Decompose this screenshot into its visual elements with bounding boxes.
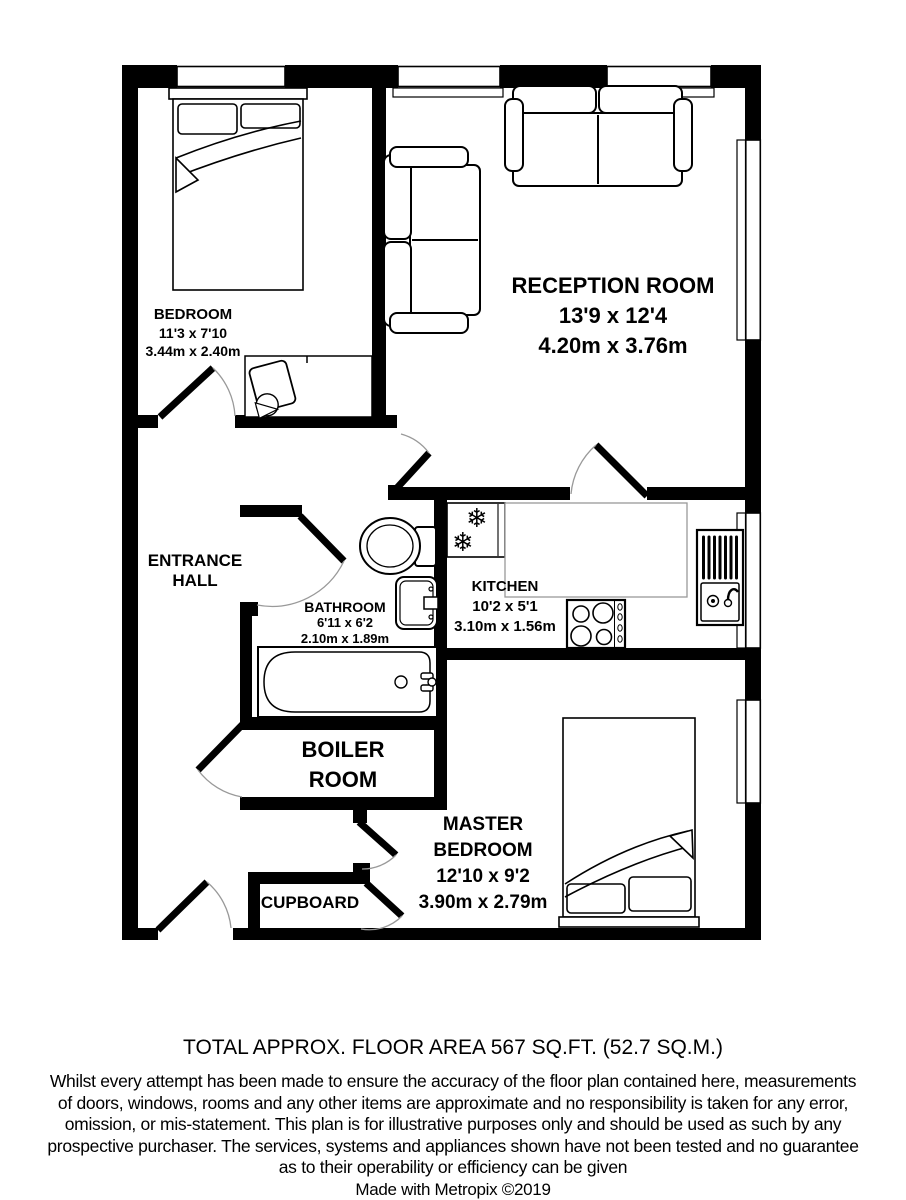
door-master-bedroom xyxy=(359,822,396,855)
reception-dims-ft: 13'9 x 12'4 xyxy=(512,301,715,331)
total-floor-area: TOTAL APPROX. FLOOR AREA 567 SQ.FT. (52.… xyxy=(0,1036,906,1060)
boiler-room-line1: BOILER xyxy=(301,735,384,765)
bedroom-dims-m: 3.44m x 2.40m xyxy=(146,342,241,360)
footer: TOTAL APPROX. FLOOR AREA 567 SQ.FT. (52.… xyxy=(0,1028,906,1200)
entrance-hall-line1: ENTRANCE xyxy=(148,551,242,571)
disclaimer-line: of doors, windows, rooms and any other i… xyxy=(0,1093,906,1115)
disclaimer-line: omission, or mis-statement. This plan is… xyxy=(0,1114,906,1136)
bathroom-dims-m: 2.10m x 1.89m xyxy=(301,631,389,647)
room-label-boiler-room: BOILER ROOM xyxy=(301,735,384,795)
room-label-bathroom: BATHROOM 6'11 x 6'2 2.10m x 1.89m xyxy=(301,599,389,647)
master-bedroom-line2: BEDROOM xyxy=(419,838,548,864)
room-label-master-bedroom: MASTER BEDROOM 12'10 x 9'2 3.90m x 2.79m xyxy=(419,812,548,916)
window-reception-side xyxy=(746,140,761,340)
kitchen-sink-icon xyxy=(697,530,743,625)
door-bedroom xyxy=(160,368,213,417)
snowflake-icon: ❄ xyxy=(452,530,474,556)
disclaimer-line: Whilst every attempt has been made to en… xyxy=(0,1071,906,1093)
reception-name: RECEPTION ROOM xyxy=(512,271,715,301)
door-entrance xyxy=(158,882,207,930)
room-label-bedroom: BEDROOM 11'3 x 7'10 3.44m x 2.40m xyxy=(146,306,241,360)
bathtub-icon xyxy=(258,647,437,717)
door-bathroom xyxy=(300,516,344,561)
master-bedroom-dims-m: 3.90m x 2.79m xyxy=(419,890,548,916)
sofa-2-icon xyxy=(384,147,480,333)
disclaimer-line: prospective purchaser. The services, sys… xyxy=(0,1136,906,1158)
window-reception-right xyxy=(607,67,711,87)
kitchen-dims-ft: 10'2 x 5'1 xyxy=(454,597,556,617)
window-master-bedroom xyxy=(746,700,761,803)
disclaimer: Whilst every attempt has been made to en… xyxy=(0,1071,906,1179)
door-reception xyxy=(396,453,429,489)
disclaimer-line: as to their operability or efficiency ca… xyxy=(0,1157,906,1179)
bedroom-dims-ft: 11'3 x 7'10 xyxy=(146,324,241,342)
floorplan-page: { "plan": { "rooms": { "bedroom": {"name… xyxy=(0,0,906,1200)
bathroom-name: BATHROOM xyxy=(301,599,389,615)
bathroom-dims-ft: 6'11 x 6'2 xyxy=(301,615,389,631)
cupboard-name: CUPBOARD xyxy=(261,894,359,911)
room-label-cupboard: CUPBOARD xyxy=(261,894,359,911)
entrance-hall-line2: HALL xyxy=(148,571,242,591)
bedroom-name: BEDROOM xyxy=(146,306,241,324)
master-bed-icon xyxy=(559,718,699,927)
room-label-entrance-hall: ENTRANCE HALL xyxy=(148,551,242,591)
door-kitchen xyxy=(596,445,647,496)
master-bedroom-dims-ft: 12'10 x 9'2 xyxy=(419,864,548,890)
reception-dims-m: 4.20m x 3.76m xyxy=(512,331,715,361)
window-kitchen xyxy=(746,513,761,648)
bed-icon xyxy=(169,88,307,290)
kitchen-dims-m: 3.10m x 1.56m xyxy=(454,617,556,637)
floorplan: ❄ ❄ BEDROOM 11'3 x 7'10 3.44m x 2.40m RE… xyxy=(0,0,906,1030)
metropix-credit: Made with Metropix ©2019 xyxy=(0,1179,906,1200)
basin-icon xyxy=(396,577,438,629)
master-bedroom-line1: MASTER xyxy=(419,812,548,838)
room-label-reception: RECEPTION ROOM 13'9 x 12'4 4.20m x 3.76m xyxy=(512,271,715,361)
hob-icon xyxy=(567,600,625,648)
door-cupboard xyxy=(366,883,402,916)
sofa-icon xyxy=(505,86,692,186)
window-bedroom xyxy=(177,67,285,87)
kitchen-name: KITCHEN xyxy=(454,577,556,597)
window-reception-left xyxy=(398,67,500,87)
door-boiler-room xyxy=(198,722,245,770)
boiler-room-line2: ROOM xyxy=(301,765,384,795)
room-label-kitchen: KITCHEN 10'2 x 5'1 3.10m x 1.56m xyxy=(454,577,556,637)
toilet-icon xyxy=(360,518,436,574)
